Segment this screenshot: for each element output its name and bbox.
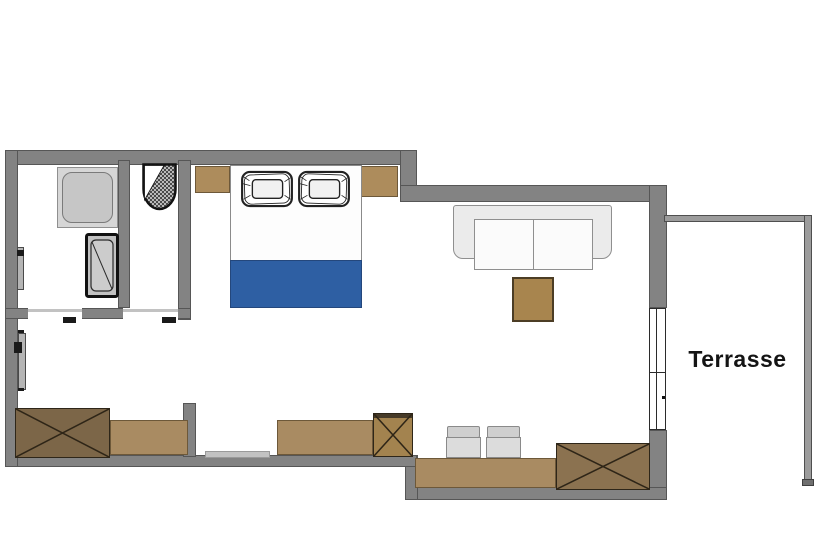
- sofa-seat: [474, 219, 593, 270]
- wall-top-left-section: [5, 150, 415, 165]
- wall-bath-divider-right: [178, 160, 191, 320]
- pillow-right: [296, 169, 352, 209]
- dresser: [110, 420, 188, 455]
- sideboard: [277, 420, 373, 455]
- door-frame-mark-bottom: [18, 388, 24, 391]
- wall-top-right-section: [400, 185, 667, 202]
- sofa-seat-divider: [533, 220, 534, 269]
- hatched-basin: [141, 162, 178, 212]
- bath-door-stop-mark-right: [162, 317, 176, 323]
- washbasin-unit: [85, 233, 119, 298]
- terrace-rail-end-cap: [802, 479, 814, 486]
- wardrobe-crossed-mid: [373, 413, 413, 457]
- entrance-door-handle: [14, 342, 22, 353]
- floor-plan: Terrasse: [0, 0, 820, 560]
- bath-wall-tab-mark: [17, 250, 24, 256]
- window-handle-mark: [662, 396, 665, 399]
- wardrobe-crossed-left: [15, 408, 110, 458]
- dining-counter: [415, 458, 556, 488]
- bed-blanket: [230, 260, 362, 308]
- chair-1-seat: [446, 437, 481, 458]
- wardrobe-crossed-right: [556, 443, 650, 490]
- nightstand-left: [195, 166, 230, 193]
- bath-door-threshold-right: [123, 309, 178, 312]
- sill-strip: [205, 451, 270, 458]
- chair-2-seat: [486, 437, 521, 458]
- coffee-table: [512, 277, 554, 322]
- pillow-left: [239, 169, 295, 209]
- bath-door-threshold-left: [28, 309, 82, 312]
- terrace-rail-top: [664, 215, 812, 222]
- bath-door-stop-mark-left: [63, 317, 76, 323]
- door-frame-mark-top: [18, 330, 24, 333]
- wall-bath-divider-left: [118, 160, 130, 308]
- nightstand-right: [360, 166, 398, 197]
- terrace-label: Terrasse: [655, 346, 820, 373]
- wall-right-upper: [649, 185, 667, 308]
- shower-base: [62, 172, 113, 223]
